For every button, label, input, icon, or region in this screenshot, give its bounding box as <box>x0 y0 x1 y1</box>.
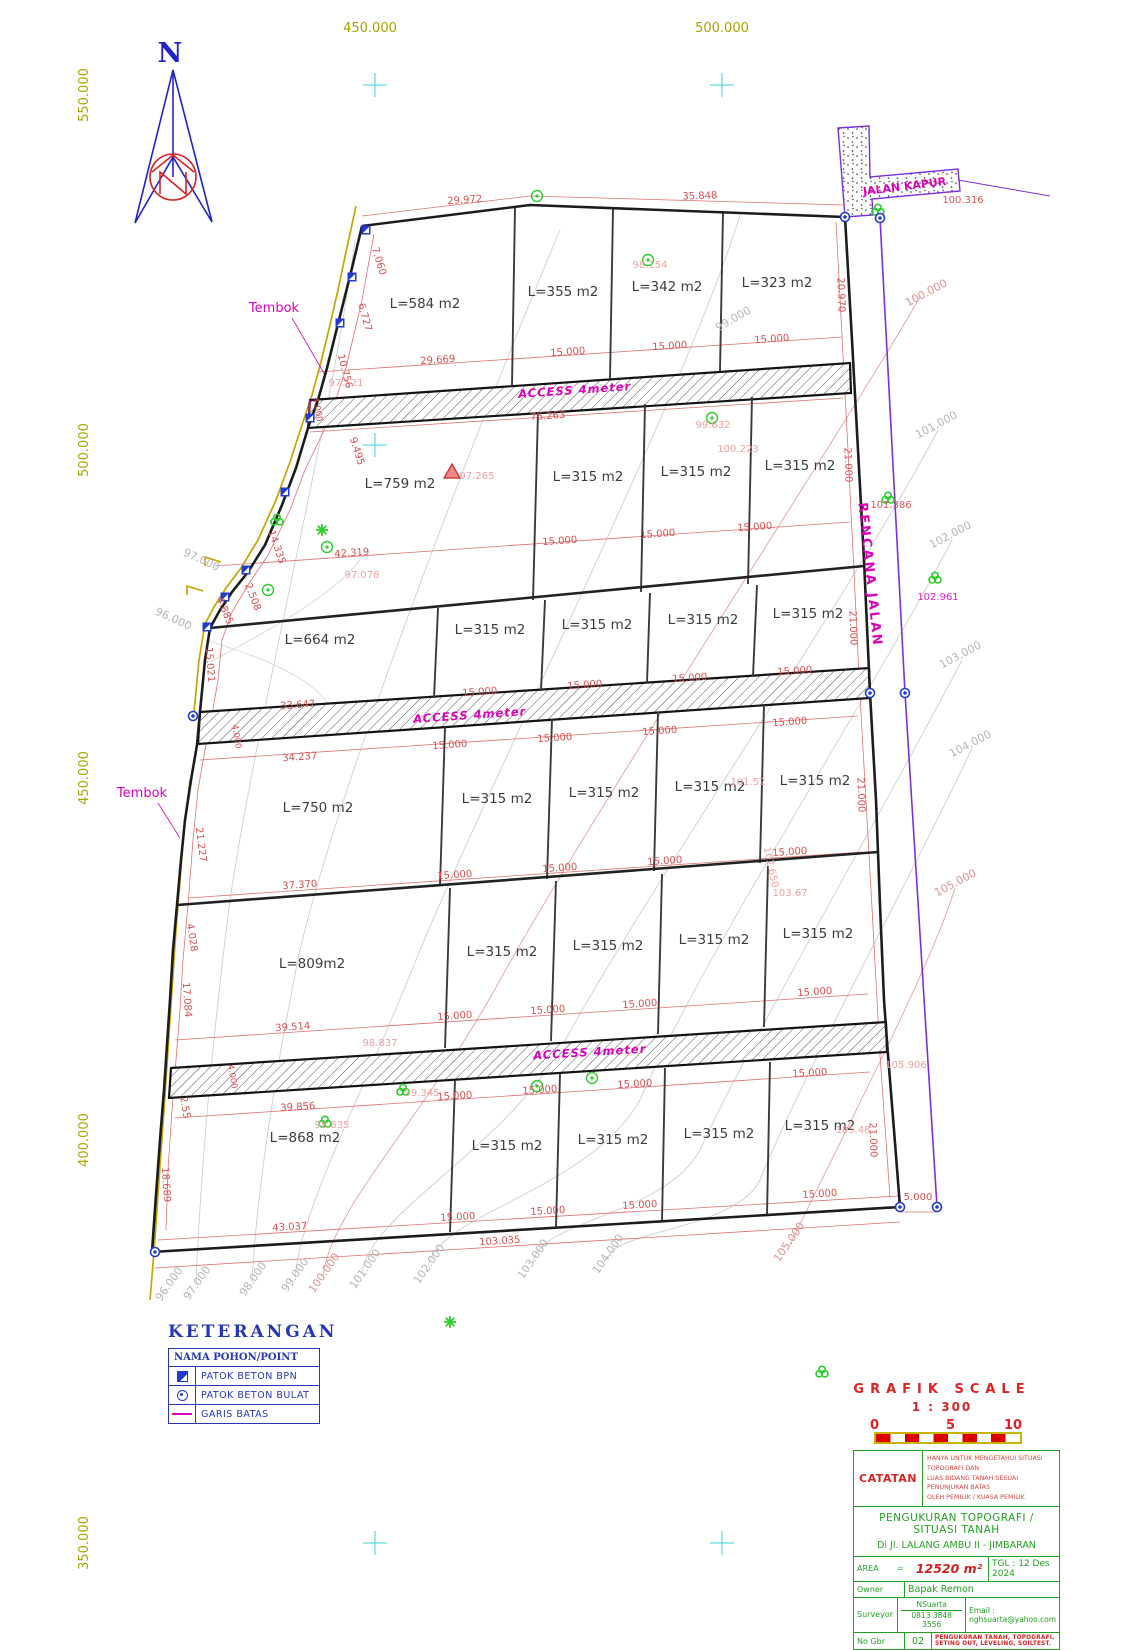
surveyor-label: Surveyor <box>854 1598 897 1632</box>
map-label-dim: 34.237 <box>282 751 318 764</box>
patok-bulat-icon <box>177 1390 188 1401</box>
map-label-dim: 17.084 <box>180 982 193 1018</box>
map-label-dim: 103.035 <box>479 1235 521 1249</box>
map-label-spot-red: 100.316 <box>942 195 983 206</box>
surveyor-email: Email : nghsuarta@yahoo.com <box>965 1598 1059 1632</box>
map-label-dim: 15.000 <box>530 1205 566 1218</box>
catatan-note-line: LUAS BIDANG TANAH SESUAI PENUNJUKAN BATA… <box>927 1474 1055 1494</box>
grid-cross-icon <box>710 1531 734 1555</box>
catatan-note: HANYA UNTUK MENGETAHUI SITUASI TOPOGRAFI… <box>922 1451 1059 1506</box>
legend-item-patok-bpn: PATOK BETON BPN <box>169 1366 319 1385</box>
date-value: TGL : 12 Des 2024 <box>988 1557 1059 1581</box>
catatan-label: CATATAN <box>854 1451 922 1506</box>
map-label-dim: 39.856 <box>280 1101 316 1114</box>
patok-bulat-icon <box>866 689 875 698</box>
map-label-dim: 21.000 <box>846 610 858 645</box>
map-label-spot: 98.635 <box>315 1120 350 1131</box>
map-label-dim: 21.227 <box>193 827 208 863</box>
map-label-spot: 98.837 <box>363 1038 398 1049</box>
map-label-plot: L=355 m2 <box>528 284 599 300</box>
map-label-dim: 43.037 <box>272 1221 308 1234</box>
grid-cross-icon <box>710 73 734 97</box>
map-label-plot: L=809m2 <box>279 956 345 972</box>
map-label-contour: 104.000 <box>947 727 993 760</box>
surveyor-name: NSuarta <box>917 1600 947 1609</box>
map-label-contour: 104.000 <box>590 1232 627 1277</box>
map-label-dim: 5.000 <box>904 1192 933 1203</box>
title-block-row-area: AREA = 12520 m² TGL : 12 Des 2024 <box>854 1556 1059 1581</box>
map-label-spot: 99.632 <box>696 420 731 431</box>
patok-bpn-icon <box>242 566 250 574</box>
scale-title: GRAFIK SCALE <box>852 1382 1032 1397</box>
catatan-note-line: OLEH PEMILIK / KUASA PEMILIK <box>927 1493 1055 1503</box>
grid-cross-icon <box>363 433 387 457</box>
north-arrow: N <box>135 38 212 223</box>
map-label-plot: L=750 m2 <box>283 800 354 816</box>
graphic-scale: GRAFIK SCALE 1 : 300 0 5 10 <box>852 1382 1032 1444</box>
map-label-plot: L=315 m2 <box>661 464 732 480</box>
patok-bpn-icon <box>203 623 211 631</box>
patok-bpn-icon <box>281 488 289 496</box>
tree-icon <box>929 572 941 583</box>
tree-icon <box>444 1316 456 1328</box>
map-label-dim: 42.319 <box>334 547 370 560</box>
map-label-dim: 15.000 <box>432 739 468 752</box>
area-equals: = <box>894 1557 910 1581</box>
map-label-contour: 102.000 <box>927 518 973 551</box>
map-label-spot-red: 101.386 <box>870 500 911 511</box>
map-label-dim: 7.060 <box>369 246 388 277</box>
map-label-contour: 101.000 <box>913 408 959 441</box>
map-label-contour: 103.000 <box>937 638 983 671</box>
map-label-dim: 18.689 <box>159 1167 172 1203</box>
map-label-plot: L=315 m2 <box>573 938 644 954</box>
map-label-plot: L=315 m2 <box>783 926 854 942</box>
map-label-contour: 99.000 <box>713 304 753 335</box>
map-label-plot: L=315 m2 <box>679 932 750 948</box>
surveyor-value: NSuarta 0813 3848 3556 <box>897 1598 965 1632</box>
map-label-dim: 15.000 <box>437 1010 473 1023</box>
map-label-dim: 15.000 <box>437 1090 473 1103</box>
owner-value: Bapak Remon <box>904 1582 1059 1597</box>
map-label-dim: 15.000 <box>440 1211 476 1224</box>
map-label-plot: L=315 m2 <box>569 785 640 801</box>
legend-header: NAMA POHON/POINT <box>169 1349 319 1366</box>
legend-title: KETERANGAN <box>168 1322 338 1342</box>
map-label-dim: 15.000 <box>792 1067 828 1080</box>
grid-cross-icon <box>363 73 387 97</box>
project-title-line1: PENGUKURAN TOPOGRAFI / SITUASI TANAH <box>854 1507 1059 1538</box>
map-label-dim: 15.000 <box>530 1004 566 1017</box>
map-label-plot: L=315 m2 <box>455 622 526 638</box>
map-label-plot: L=868 m2 <box>270 1130 341 1146</box>
no-gbr-label: No Gbr <box>854 1633 904 1649</box>
tree-icon <box>263 585 274 596</box>
map-label-plot: L=584 m2 <box>390 296 461 312</box>
scale-tick-5: 5 <box>946 1418 955 1433</box>
map-label-tembok: Tembok <box>248 301 300 316</box>
legend-item-garis-batas: GARIS BATAS <box>169 1404 319 1423</box>
map-label-dim: 2.508 <box>242 582 263 613</box>
patok-bulat-icon <box>151 1248 160 1257</box>
map-label-dim: 21.000 <box>841 447 853 482</box>
surveyor-phone: 0813 3848 3556 <box>901 1610 962 1631</box>
map-label-spot: 105.906 <box>885 1060 926 1071</box>
legend-item-label: PATOK BETON BULAT <box>196 1390 309 1401</box>
patok-bulat-icon <box>876 214 885 223</box>
legend-item-patok-bulat: PATOK BETON BULAT <box>169 1385 319 1404</box>
map-label-grid: 500.000 <box>695 21 749 36</box>
map-label-plot: L=315 m2 <box>668 612 739 628</box>
map-label-plot: L=315 m2 <box>467 944 538 960</box>
map-label-dim: 15.000 <box>797 986 833 999</box>
map-label-dim: 37.370 <box>282 879 318 892</box>
map-label-plot: L=323 m2 <box>742 275 813 291</box>
map-label-dim: 15.000 <box>622 1199 658 1212</box>
map-label-dim: 14.335 <box>265 529 287 566</box>
scale-bar <box>874 1432 1022 1444</box>
map-label-spot: 98.154 <box>633 260 668 271</box>
map-label-plot: L=315 m2 <box>773 606 844 622</box>
no-gbr-value: 02 <box>904 1633 931 1649</box>
map-label-spot: 97.265 <box>460 471 495 482</box>
map-label-grid: 450.000 <box>77 751 92 805</box>
map-label-plot: L=664 m2 <box>285 632 356 648</box>
map-label-grid: 400.000 <box>77 1113 92 1167</box>
map-label-plot: L=315 m2 <box>562 617 633 633</box>
map-label-dim: 15.000 <box>737 521 773 534</box>
title-block-row-surveyor: Surveyor NSuarta 0813 3848 3556 Email : … <box>854 1597 1059 1632</box>
title-block-footer: PENGUKURAN TANAH, TOPOGRAFI, SETING OUT,… <box>931 1633 1059 1649</box>
map-label-dim: 15.000 <box>640 528 676 541</box>
patok-bulat-icon <box>841 213 850 222</box>
scale-ratio: 1 : 300 <box>852 1400 1032 1414</box>
map-label-grid: 550.000 <box>77 68 92 122</box>
map-label-dim: 4.885 <box>214 596 235 627</box>
legend-item-label: GARIS BATAS <box>196 1409 269 1420</box>
title-block-row-nogbr: No Gbr 02 PENGUKURAN TANAH, TOPOGRAFI, S… <box>854 1632 1059 1649</box>
area-value: 12520 m² <box>910 1557 988 1581</box>
map-label-dim: 4.028 <box>184 923 199 953</box>
map-label-spot: 100.223 <box>717 444 758 455</box>
map-label-plot: L=759 m2 <box>365 476 436 492</box>
map-label-grid: 350.000 <box>77 1516 92 1570</box>
map-label-spot: 99.345 <box>405 1088 440 1099</box>
scale-tick-0: 0 <box>870 1418 879 1433</box>
patok-bpn-icon <box>306 414 314 422</box>
map-label-contour: 97.000 <box>181 1263 214 1302</box>
map-label-dim: 15.000 <box>537 732 573 745</box>
map-label-tembok: Tembok <box>116 786 168 801</box>
patok-bpn-icon <box>348 273 356 281</box>
benchmark-icon <box>444 464 460 478</box>
legend: KETERANGAN NAMA POHON/POINT PATOK BETON … <box>168 1322 338 1424</box>
title-block-row-owner: Owner Bapak Remon <box>854 1581 1059 1597</box>
map-label-dim: 15.000 <box>542 862 578 875</box>
scale-tick-10: 10 <box>1004 1418 1022 1433</box>
map-label-dim: 15.000 <box>622 998 658 1011</box>
map-label-dim: 15.000 <box>754 333 790 346</box>
patok-bulat-icon <box>189 712 198 721</box>
tree-icon <box>587 1073 598 1084</box>
map-label-contour: 97.000 <box>181 546 221 574</box>
map-label-plot: L=315 m2 <box>684 1126 755 1142</box>
jalan-kapur-extension <box>958 180 1050 196</box>
map-label-spot: 105.48 <box>836 1125 871 1136</box>
map-label-dim: 76.263 <box>530 410 566 423</box>
map-label-dim: 15.000 <box>437 869 473 882</box>
map-label-dim: 15.000 <box>522 1084 558 1097</box>
patok-bulat-icon <box>901 689 910 698</box>
grid-cross-icon <box>363 1531 387 1555</box>
map-label-spot: 103.67 <box>773 888 808 899</box>
garis-batas-icon <box>172 1413 192 1415</box>
map-label-plot: L=342 m2 <box>632 279 703 295</box>
tree-icon <box>816 1366 828 1377</box>
map-label-contour: 96.000 <box>153 605 193 633</box>
map-label-plot: L=315 m2 <box>472 1138 543 1154</box>
map-label-spot: 97.521 <box>329 378 364 389</box>
map-label-dim: 39.514 <box>275 1021 311 1034</box>
patok-bpn-icon <box>362 226 370 234</box>
patok-bpn-icon <box>177 1371 188 1382</box>
tree-icon <box>316 524 328 536</box>
tree-icon <box>322 542 333 553</box>
map-label-contour: 96.000 <box>153 1264 186 1303</box>
title-block-row-catatan: CATATAN HANYA UNTUK MENGETAHUI SITUASI T… <box>854 1451 1059 1506</box>
map-label-plot: L=315 m2 <box>462 791 533 807</box>
map-label-contour: 101.000 <box>347 1247 384 1292</box>
map-label-contour-red: 105.000 <box>932 866 978 899</box>
patok-bulat-icon <box>933 1203 942 1212</box>
map-label-plot: L=315 m2 <box>578 1132 649 1148</box>
title-block-row-project: PENGUKURAN TOPOGRAFI / SITUASI TANAH Di … <box>854 1506 1059 1556</box>
catatan-note-line: HANYA UNTUK MENGETAHUI SITUASI TOPOGRAFI… <box>927 1454 1055 1474</box>
owner-label: Owner <box>854 1582 904 1597</box>
map-label-contour-red: 105.000 <box>771 1220 808 1265</box>
patok-bpn-icon <box>336 319 344 327</box>
legend-table: NAMA POHON/POINT PATOK BETON BPN PATOK B… <box>168 1348 320 1424</box>
map-label-dim: 21.000 <box>854 777 866 812</box>
patok-bulat-icon <box>896 1203 905 1212</box>
map-label-contour: 102.000 <box>411 1242 448 1287</box>
map-label-dim: 15.000 <box>802 1188 838 1201</box>
map-label-dim: 15.000 <box>772 716 808 729</box>
map-label-dim: 15.000 <box>542 535 578 548</box>
area-label: AREA <box>854 1557 894 1581</box>
map-label-plot: L=315 m2 <box>765 458 836 474</box>
map-label-plot: L=315 m2 <box>553 469 624 485</box>
map-label-dim: 29.972 <box>447 194 483 207</box>
survey-drawing-page: { "title": "Pengukuran Topografi / Situa… <box>0 0 1130 1600</box>
map-label-road: RENCANA JALAN <box>854 502 884 648</box>
map-label-dim: 9.495 <box>347 436 366 467</box>
scale-ticks: 0 5 10 <box>852 1418 1032 1432</box>
map-label-dim: 2.55 <box>177 1096 192 1120</box>
map-label-contour-red: 100.000 <box>903 276 949 309</box>
map-label-dim: 35.848 <box>682 190 717 202</box>
map-label-dim: 15.021 <box>203 647 216 683</box>
title-block: CATATAN HANYA UNTUK MENGETAHUI SITUASI T… <box>853 1450 1060 1650</box>
map-label-dim: 20.970 <box>834 277 846 312</box>
map-label-dim: 29.669 <box>420 354 456 367</box>
legend-item-label: PATOK BETON BPN <box>196 1371 297 1382</box>
map-label-dim: 15.000 <box>617 1078 653 1091</box>
map-label-spot-mag: 102.961 <box>917 592 958 603</box>
map-label-dim: 15.000 <box>652 340 688 353</box>
project-title-line2: Di Jl. LALANG AMBU II - JIMBARAN <box>854 1538 1059 1556</box>
map-label-dim: 15.000 <box>642 725 678 738</box>
map-label-spot: 101.52 <box>731 777 766 788</box>
north-letter: N <box>158 38 183 69</box>
map-label-dim: 15.000 <box>550 346 586 359</box>
map-label-grid: 500.000 <box>77 423 92 477</box>
map-label-plot: L=315 m2 <box>780 773 851 789</box>
map-label-spot: 97.078 <box>345 570 380 581</box>
map-label-grid: 450.000 <box>343 21 397 36</box>
